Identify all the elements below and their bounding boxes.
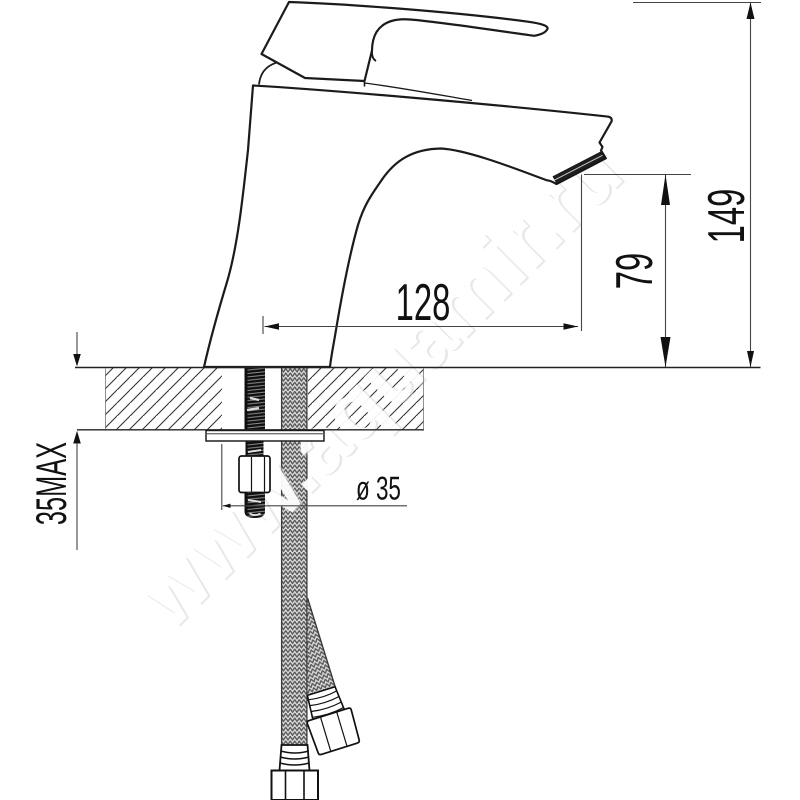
svg-text:79: 79 bbox=[606, 253, 664, 289]
svg-text:ø 35: ø 35 bbox=[356, 470, 401, 507]
svg-text:35MAX: 35MAX bbox=[28, 442, 76, 525]
svg-text:128: 128 bbox=[396, 274, 451, 332]
svg-text:149: 149 bbox=[698, 189, 756, 244]
